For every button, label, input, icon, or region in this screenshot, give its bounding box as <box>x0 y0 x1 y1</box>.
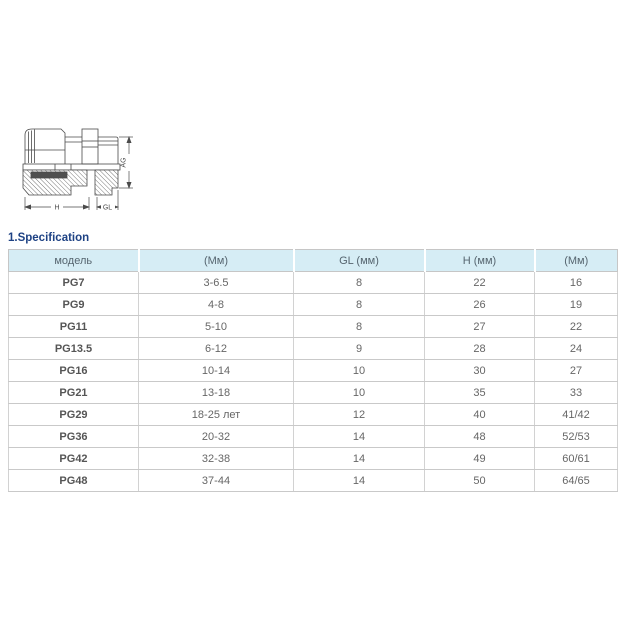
table-header-row: модель (Мм) GL (мм) H (мм) (Мм) <box>9 250 618 272</box>
cell-mm: 16 <box>535 272 618 294</box>
cell-gl: 10 <box>294 382 425 404</box>
column-header-mm: (Мм) <box>535 250 618 272</box>
cell-h: 28 <box>425 338 535 360</box>
spec-table-body: PG7 3-6.5 8 22 16 PG9 4-8 8 26 19 PG11 5… <box>9 272 618 492</box>
table-row: PG36 20-32 14 48 52/53 <box>9 426 618 448</box>
cell-h: 30 <box>425 360 535 382</box>
cell-h: 49 <box>425 448 535 470</box>
dimension-label-gl: GL <box>103 205 112 212</box>
cell-mm: 33 <box>535 382 618 404</box>
cell-mm: 22 <box>535 316 618 338</box>
table-row: PG16 10-14 10 30 27 <box>9 360 618 382</box>
cell-mm-range: 13-18 <box>139 382 294 404</box>
column-header-model: модель <box>9 250 139 272</box>
page: H GL AG 1.Specification модель (Мм) GL (… <box>0 0 624 624</box>
spec-table: модель (Мм) GL (мм) H (мм) (Мм) PG7 3-6.… <box>8 249 618 492</box>
cell-model: PG9 <box>9 294 139 316</box>
cell-model: PG13.5 <box>9 338 139 360</box>
cell-model: PG16 <box>9 360 139 382</box>
cell-gl: 8 <box>294 272 425 294</box>
cell-mm-range: 3-6.5 <box>139 272 294 294</box>
table-row: PG48 37-44 14 50 64/65 <box>9 470 618 492</box>
cell-h: 26 <box>425 294 535 316</box>
gland-section-hatching <box>23 170 118 195</box>
cell-gl: 14 <box>294 448 425 470</box>
table-row: PG9 4-8 8 26 19 <box>9 294 618 316</box>
cell-mm: 64/65 <box>535 470 618 492</box>
gland-body-outline <box>23 129 120 170</box>
table-row: PG21 13-18 10 35 33 <box>9 382 618 404</box>
column-header-mm-range: (Мм) <box>139 250 294 272</box>
column-header-gl: GL (мм) <box>294 250 425 272</box>
cell-model: PG48 <box>9 470 139 492</box>
cell-h: 27 <box>425 316 535 338</box>
cell-mm-range: 6-12 <box>139 338 294 360</box>
cell-model: PG29 <box>9 404 139 426</box>
cell-h: 40 <box>425 404 535 426</box>
cell-gl: 9 <box>294 338 425 360</box>
column-header-h: H (мм) <box>425 250 535 272</box>
cell-mm: 24 <box>535 338 618 360</box>
cell-gl: 8 <box>294 316 425 338</box>
cell-model: PG21 <box>9 382 139 404</box>
cell-gl: 10 <box>294 360 425 382</box>
cell-mm: 41/42 <box>535 404 618 426</box>
table-row: PG29 18-25 лет 12 40 41/42 <box>9 404 618 426</box>
cell-mm-range: 5-10 <box>139 316 294 338</box>
cell-model: PG7 <box>9 272 139 294</box>
table-row: PG11 5-10 8 27 22 <box>9 316 618 338</box>
cell-mm-range: 10-14 <box>139 360 294 382</box>
cell-mm-range: 18-25 лет <box>139 404 294 426</box>
cell-h: 35 <box>425 382 535 404</box>
cable-gland-diagram: H GL AG <box>15 104 163 226</box>
cell-mm: 60/61 <box>535 448 618 470</box>
cell-gl: 12 <box>294 404 425 426</box>
cell-mm-range: 37-44 <box>139 470 294 492</box>
cell-mm-range: 4-8 <box>139 294 294 316</box>
table-row: PG42 32-38 14 49 60/61 <box>9 448 618 470</box>
dimension-label-h: H <box>54 205 59 212</box>
cable-gland-drawing-svg: H GL AG <box>15 104 163 226</box>
cell-gl: 14 <box>294 470 425 492</box>
dimension-label-ag: AG <box>121 157 128 167</box>
cell-gl: 14 <box>294 426 425 448</box>
cell-mm: 52/53 <box>535 426 618 448</box>
cell-h: 50 <box>425 470 535 492</box>
cell-h: 22 <box>425 272 535 294</box>
cell-model: PG36 <box>9 426 139 448</box>
cell-model: PG11 <box>9 316 139 338</box>
cell-mm-range: 20-32 <box>139 426 294 448</box>
cell-mm: 27 <box>535 360 618 382</box>
cell-mm-range: 32-38 <box>139 448 294 470</box>
cell-mm: 19 <box>535 294 618 316</box>
section-title: 1.Specification <box>8 232 89 244</box>
cell-gl: 8 <box>294 294 425 316</box>
cell-model: PG42 <box>9 448 139 470</box>
table-row: PG7 3-6.5 8 22 16 <box>9 272 618 294</box>
table-row: PG13.5 6-12 9 28 24 <box>9 338 618 360</box>
cell-h: 48 <box>425 426 535 448</box>
seal-strip <box>31 172 67 178</box>
